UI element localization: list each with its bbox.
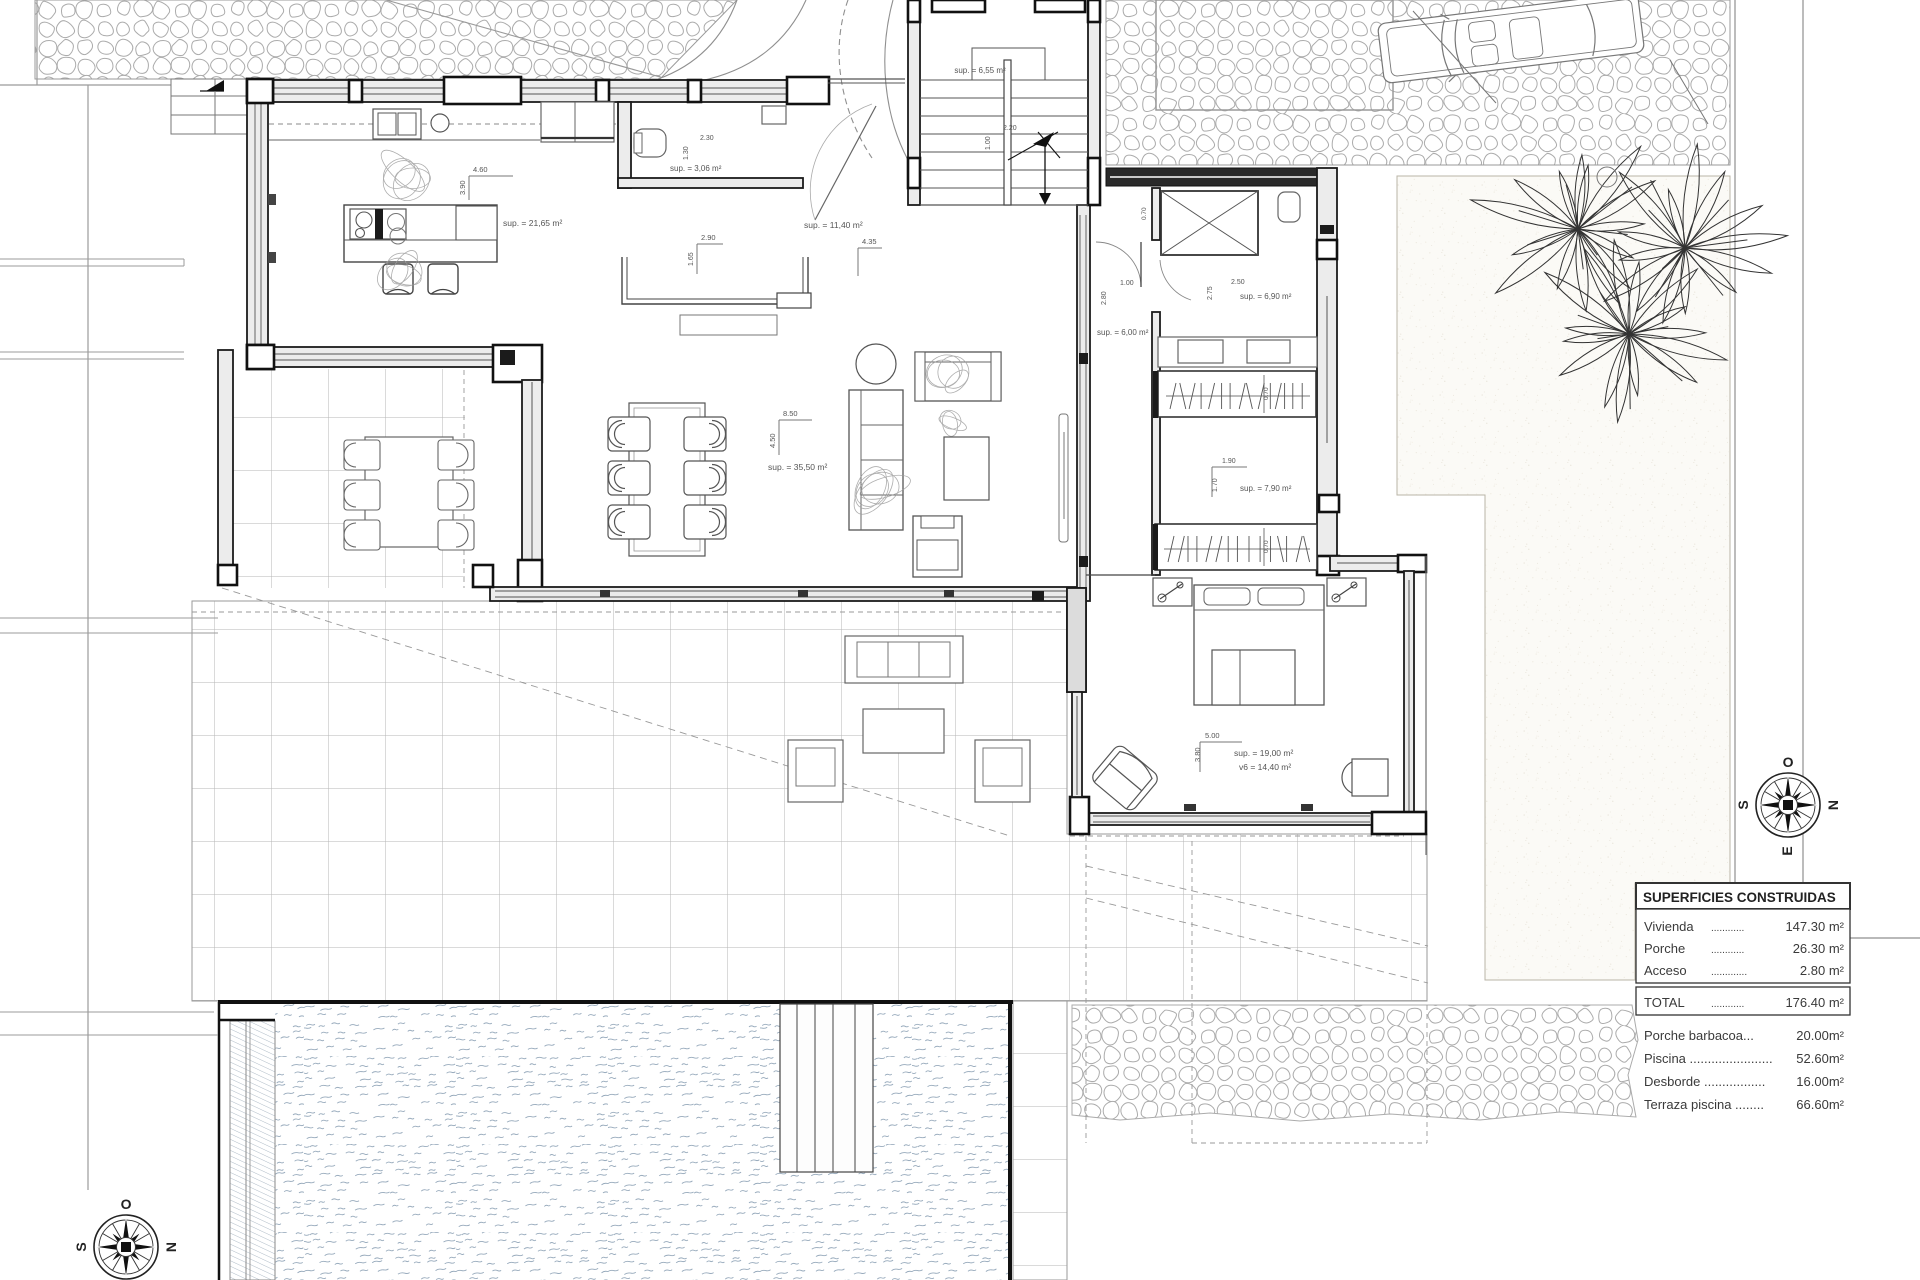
- svg-text:SUPERFICIES CONSTRUIDAS: SUPERFICIES CONSTRUIDAS: [1643, 890, 1836, 905]
- svg-text:sup. = 35,50 m²: sup. = 35,50 m²: [768, 462, 827, 472]
- svg-text:sup. = 7,90 m²: sup. = 7,90 m²: [1240, 484, 1292, 493]
- svg-text:v6 = 14,40 m²: v6 = 14,40 m²: [1239, 762, 1291, 772]
- svg-text:sup. = 3,06 m²: sup. = 3,06 m²: [670, 164, 722, 173]
- svg-text:66.60m²: 66.60m²: [1796, 1097, 1844, 1112]
- svg-text:............: ............: [1711, 945, 1744, 956]
- svg-text:176.40 m²: 176.40 m²: [1785, 995, 1844, 1010]
- svg-text:.............: .............: [1711, 967, 1747, 978]
- svg-text:sup. = 19,00 m²: sup. = 19,00 m²: [1234, 748, 1293, 758]
- svg-text:sup. = 6,90 m²: sup. = 6,90 m²: [1240, 292, 1292, 301]
- svg-text:Piscina ......................: Piscina .......................: [1644, 1051, 1773, 1066]
- svg-text:O: O: [1783, 754, 1794, 770]
- svg-text:4.50: 4.50: [768, 433, 777, 448]
- svg-text:sup. = 21,65 m²: sup. = 21,65 m²: [503, 218, 562, 228]
- svg-text:4.60: 4.60: [473, 165, 488, 174]
- svg-text:8.50: 8.50: [783, 409, 798, 418]
- svg-text:1.00: 1.00: [985, 136, 992, 150]
- svg-text:3.80: 3.80: [1193, 747, 1202, 762]
- svg-text:1.00: 1.00: [1120, 280, 1134, 287]
- svg-text:TOTAL: TOTAL: [1644, 995, 1685, 1010]
- svg-text:E: E: [1779, 846, 1795, 855]
- svg-text:4.35: 4.35: [862, 237, 877, 246]
- svg-text:Porche barbacoa...: Porche barbacoa...: [1644, 1028, 1754, 1043]
- svg-text:0.70: 0.70: [1263, 540, 1270, 553]
- svg-text:sup. = 11,40 m²: sup. = 11,40 m²: [804, 220, 863, 230]
- svg-text:Porche: Porche: [1644, 941, 1685, 956]
- svg-text:2.50: 2.50: [1231, 279, 1245, 286]
- svg-text:Vivienda: Vivienda: [1644, 919, 1694, 934]
- svg-text:2.20: 2.20: [1003, 125, 1017, 132]
- svg-text:20.00m²: 20.00m²: [1796, 1028, 1844, 1043]
- svg-text:1.70: 1.70: [1212, 478, 1219, 492]
- svg-text:2.80 m²: 2.80 m²: [1800, 963, 1845, 978]
- svg-text:1.90: 1.90: [1222, 458, 1236, 465]
- svg-text:............: ............: [1711, 923, 1744, 934]
- svg-text:26.30 m²: 26.30 m²: [1793, 941, 1845, 956]
- svg-text:16.00m²: 16.00m²: [1796, 1074, 1844, 1089]
- svg-text:2.80: 2.80: [1101, 291, 1108, 305]
- svg-text:2.75: 2.75: [1207, 286, 1214, 300]
- svg-text:52.60m²: 52.60m²: [1796, 1051, 1844, 1066]
- svg-text:N: N: [1825, 800, 1841, 810]
- svg-text:Terraza piscina ........: Terraza piscina ........: [1644, 1097, 1764, 1112]
- svg-text:Desborde .................: Desborde .................: [1644, 1074, 1765, 1089]
- svg-text:2.90: 2.90: [701, 233, 716, 242]
- svg-text:sup. = 6,55 m²: sup. = 6,55 m²: [954, 66, 1006, 75]
- svg-text:N: N: [163, 1242, 179, 1252]
- svg-text:3.90: 3.90: [458, 180, 467, 195]
- svg-text:............: ............: [1711, 999, 1744, 1010]
- svg-text:S: S: [1735, 800, 1751, 809]
- svg-text:1.65: 1.65: [688, 252, 695, 266]
- svg-text:sup. = 6,00 m²: sup. = 6,00 m²: [1097, 328, 1149, 337]
- svg-text:0.70: 0.70: [1141, 207, 1148, 220]
- svg-text:147.30 m²: 147.30 m²: [1785, 919, 1844, 934]
- svg-text:1.30: 1.30: [683, 146, 690, 160]
- svg-text:Acceso: Acceso: [1644, 963, 1687, 978]
- svg-text:2.30: 2.30: [700, 135, 714, 142]
- svg-text:5.00: 5.00: [1205, 731, 1220, 740]
- svg-text:S: S: [73, 1242, 89, 1251]
- svg-text:O: O: [121, 1196, 132, 1212]
- svg-text:0.70: 0.70: [1263, 387, 1270, 400]
